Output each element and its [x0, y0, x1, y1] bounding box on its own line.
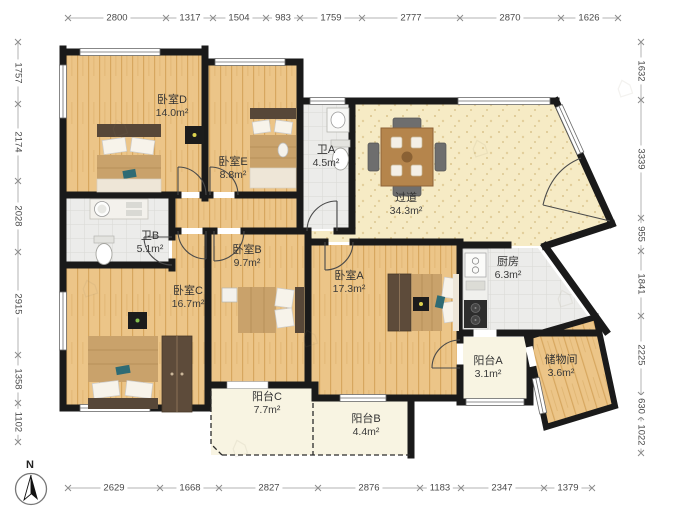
dim-bottom-6: 1379: [554, 483, 581, 494]
dim-bottom-2: 2827: [255, 483, 282, 494]
room-label-bedroom-d: 卧室D14.0m²: [156, 93, 189, 121]
dim-right-5: 630: [636, 395, 647, 417]
dim-left-2: 2028: [13, 202, 24, 229]
window-bath-a-top: [310, 98, 345, 105]
room-label-bedroom-a: 卧室A17.3m²: [333, 269, 366, 297]
window-bedroom-a-bottom: [340, 395, 386, 402]
window-hall-top: [458, 98, 550, 105]
room-label-hallway: 过道34.3m²: [390, 191, 423, 219]
room-label-balcony-a: 阳台A3.1m²: [473, 354, 502, 382]
window-bedroom-c-left: [60, 292, 67, 350]
dim-left-4: 1358: [13, 365, 24, 392]
floorplan-page: { "rooms": { "bedroom_d": {"name": "卧室D"…: [0, 0, 680, 510]
opening-bedroom-b-bottom: [227, 382, 268, 389]
north-compass-icon: [16, 474, 47, 505]
dim-right-6: 1022: [636, 421, 647, 448]
room-label-balcony-b: 阳台B4.4m²: [351, 412, 380, 440]
north-label: N: [26, 459, 34, 471]
dim-left-0: 1757: [13, 59, 24, 86]
dim-left-3: 2915: [13, 290, 24, 317]
room-label-bedroom-e: 卧室E8.8m²: [218, 155, 247, 183]
floor-plan-canvas: [0, 0, 680, 510]
dim-top-1: 1317: [176, 13, 203, 24]
room-label-storage: 储物间3.6m²: [545, 353, 578, 381]
window-bedroom-e-top: [215, 59, 285, 66]
dim-top-2: 1504: [225, 13, 252, 24]
sink-icon: [327, 108, 349, 132]
room-label-bedroom-c: 卧室C16.7m²: [172, 284, 205, 312]
kitchen-sink-icon: [465, 253, 486, 277]
dim-top-0: 2800: [103, 13, 130, 24]
dim-bottom-1: 1668: [176, 483, 203, 494]
room-label-balcony-c: 阳台C7.7m²: [252, 390, 282, 418]
dim-bottom-0: 2629: [100, 483, 127, 494]
window-balcony-a-bottom: [466, 399, 524, 406]
dim-top-4: 1759: [317, 13, 344, 24]
dim-right-1: 3339: [636, 145, 647, 172]
window-bedroom-d-top: [80, 49, 160, 56]
stove-icon: [464, 300, 487, 328]
window-bedroom-d-left: [60, 65, 67, 118]
room-label-bath-a: 卫A4.5m²: [313, 143, 340, 171]
dim-top-7: 1626: [575, 13, 602, 24]
kitchen-fixtures: [463, 249, 488, 329]
dim-left-5: 1102: [13, 409, 24, 435]
room-label-bath-b: 卫B5.1m²: [137, 229, 164, 257]
washer-icon: [90, 199, 148, 219]
dim-right-2: 955: [636, 223, 647, 245]
bed-a-icon: [388, 274, 459, 331]
dim-top-6: 2870: [496, 13, 523, 24]
dim-bottom-5: 2347: [488, 483, 515, 494]
room-label-kitchen: 厨房6.3m²: [495, 255, 522, 283]
dim-top-3: 983: [272, 13, 294, 24]
dim-bottom-4: 1183: [427, 483, 453, 494]
dim-right-3: 1841: [636, 270, 647, 297]
dim-right-0: 1632: [636, 57, 647, 84]
dim-left-1: 2174: [13, 128, 24, 155]
room-label-bedroom-b: 卧室B9.7m²: [232, 243, 261, 271]
wardrobe-c-icon: [162, 336, 192, 412]
dim-top-5: 2777: [397, 13, 424, 24]
dim-bottom-3: 2876: [355, 483, 382, 494]
dim-right-4: 2225: [636, 341, 647, 368]
